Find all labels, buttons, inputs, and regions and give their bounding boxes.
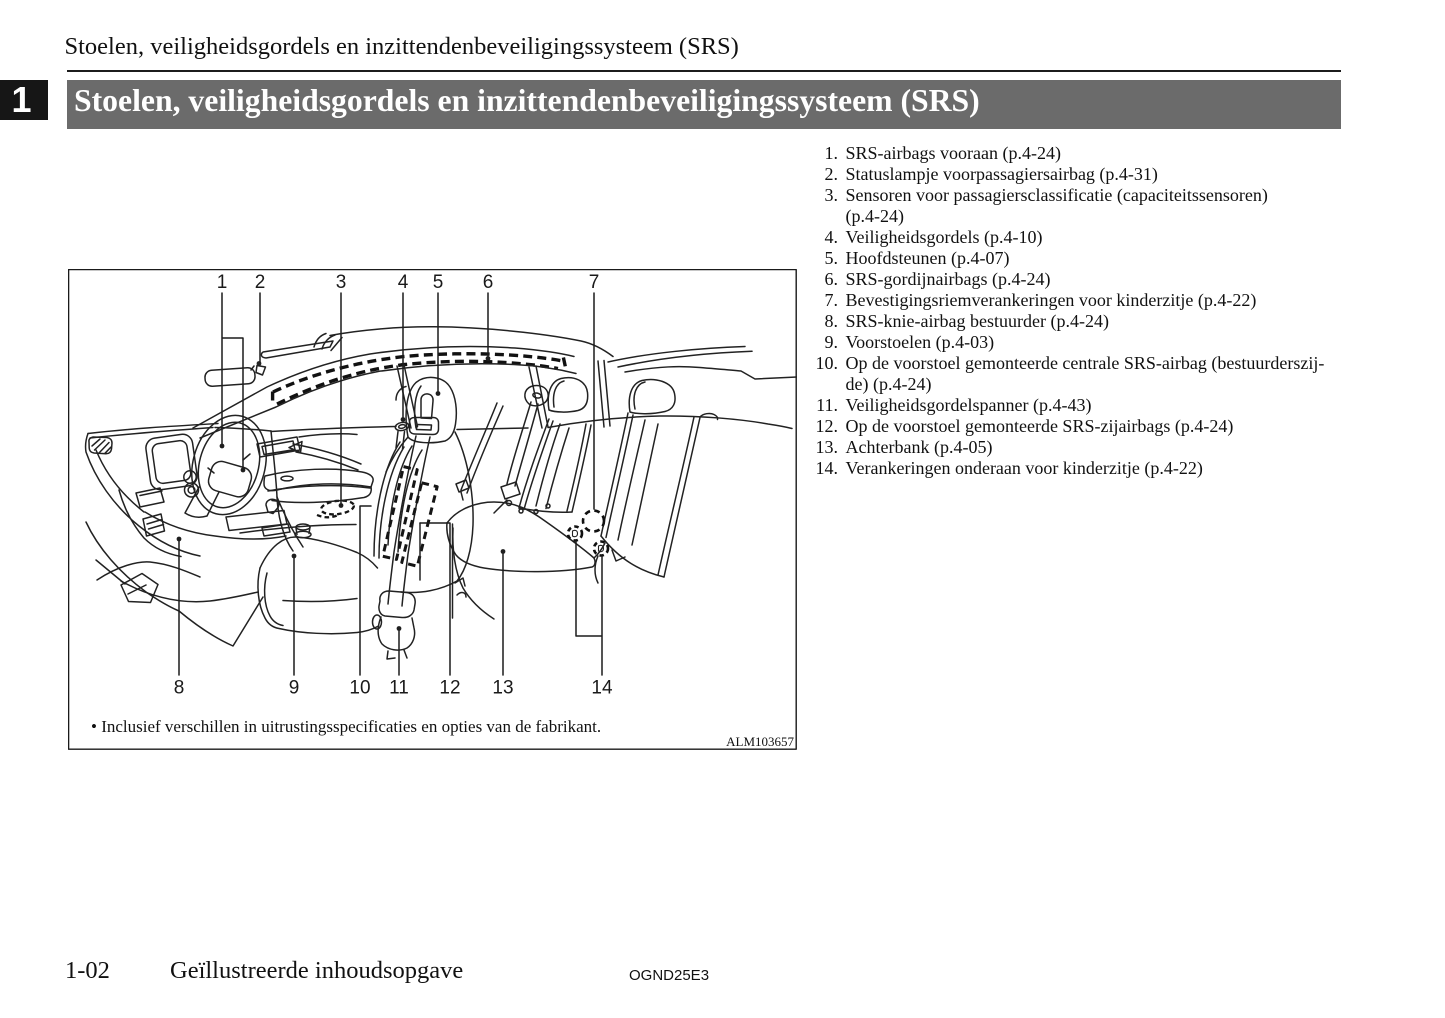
svg-text:1: 1 bbox=[217, 272, 228, 293]
svg-text:2: 2 bbox=[255, 272, 266, 293]
svg-text:14: 14 bbox=[591, 678, 613, 699]
svg-text:11: 11 bbox=[389, 678, 409, 699]
svg-text:6: 6 bbox=[483, 272, 494, 293]
svg-text:5: 5 bbox=[433, 272, 444, 293]
svg-text:10: 10 bbox=[349, 678, 370, 699]
svg-text:12: 12 bbox=[439, 678, 460, 699]
svg-text:13: 13 bbox=[492, 678, 513, 699]
svg-text:7: 7 bbox=[589, 272, 600, 293]
svg-text:9: 9 bbox=[289, 678, 300, 699]
svg-text:8: 8 bbox=[174, 678, 185, 699]
svg-text:4: 4 bbox=[398, 272, 409, 293]
svg-text:3: 3 bbox=[336, 272, 347, 293]
